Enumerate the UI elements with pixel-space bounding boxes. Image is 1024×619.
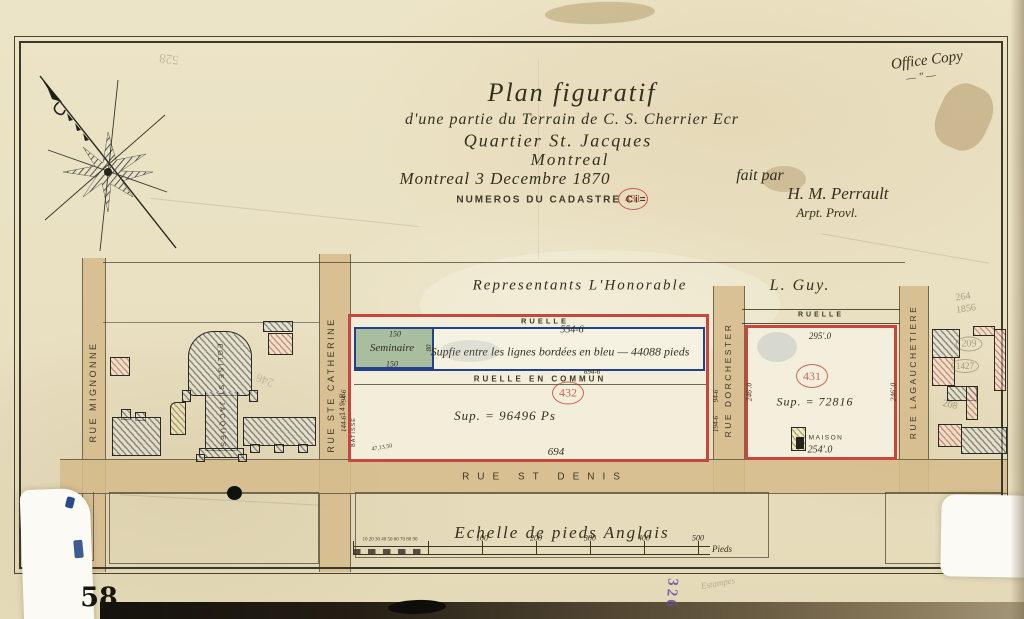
street-label-dorchester: RUE DORCHESTER xyxy=(723,323,733,438)
ink-blot xyxy=(227,486,242,500)
plan-dateline: Montreal 3 Decembre 1870 xyxy=(399,169,610,189)
representants-text: Representants L'Honorable xyxy=(473,278,688,295)
pencil-number-circled: 1427 xyxy=(951,359,979,373)
street-label-ste-catherine: RUE STE CATHERINE xyxy=(326,317,336,452)
surveyor-title: Arpt. Provl. xyxy=(796,205,857,221)
building xyxy=(932,357,955,386)
maison-label: MAISON xyxy=(809,435,844,442)
scale-bar-subdivisions xyxy=(353,549,428,554)
archive-number: 58 xyxy=(80,583,118,614)
scale-sub-numbers: 10 20 30 40 50 60 70 80 90 xyxy=(363,538,418,543)
plan-title: Plan figuratif xyxy=(488,78,657,108)
building xyxy=(973,326,995,336)
scale-tick xyxy=(353,541,354,554)
lot-431-right-measure: 246'.0 xyxy=(889,383,898,401)
lot-432-bottom-measure: 694 xyxy=(548,446,565,458)
purple-stamp-number: 326 xyxy=(661,578,680,611)
maison-building-dark xyxy=(796,437,804,449)
owner-name: L. Guy. xyxy=(770,277,831,295)
compass-rose-icon xyxy=(15,55,265,305)
blue-area-top-measure: 554-6 xyxy=(560,325,583,336)
lot-431-superficie: Sup. = 72816 xyxy=(776,395,853,410)
pencil-number-circled: 209 xyxy=(956,337,983,352)
seminaire-top-measure: 150 xyxy=(389,330,401,339)
street-label-mignonne: RUE MIGNONNE xyxy=(88,341,98,442)
seminaire-label: Seminaire xyxy=(370,342,414,354)
building xyxy=(110,357,130,376)
scale-tick-label-400: 400 xyxy=(638,534,650,543)
scale-tick-label-300: 300 xyxy=(584,534,596,543)
building xyxy=(938,424,962,447)
church-step-foot xyxy=(196,454,205,462)
scale-tick xyxy=(536,541,537,554)
scale-tick xyxy=(590,541,591,554)
building xyxy=(112,417,161,456)
scale-tick xyxy=(428,541,429,554)
ruelle-commun-line xyxy=(354,384,706,385)
lot-432-superficie: Sup. = 96496 Ps xyxy=(454,408,556,424)
lot-432-right-lower-measure: 194-6 xyxy=(712,416,720,432)
lot-431-number-stamp: 431 xyxy=(796,364,828,388)
pencil-note-top-left: 528 xyxy=(158,50,179,68)
ruelle-431-label: RUELLE xyxy=(798,312,844,319)
lot-432-right-upper-measure: 94-6 xyxy=(712,390,720,403)
scale-tick xyxy=(644,541,645,554)
building xyxy=(961,427,1007,454)
building xyxy=(268,333,293,355)
surveyor-name: H. M. Perrault xyxy=(787,184,888,204)
ink-smudge-blue xyxy=(73,540,84,559)
plan-quartier: Quartier St. Jacques xyxy=(464,131,652,152)
lot-431-top-measure: 295'.0 xyxy=(809,331,831,341)
building-foot xyxy=(298,444,308,453)
street-label-lagauchetiere: RUE LAGAUCHETIERE xyxy=(908,305,918,440)
ink-smudge xyxy=(440,340,500,362)
plan-city: Montreal xyxy=(531,150,610,170)
pencil-number: 264 xyxy=(955,291,971,304)
scale-tick-label-500: 500 xyxy=(692,534,704,543)
lot-432-batisse-label: BATISSE xyxy=(351,417,357,447)
cadastre-number: 431 xyxy=(625,193,642,205)
ruelle-commun-label: RUELLE EN COMMUN xyxy=(474,375,606,384)
church-step-foot xyxy=(238,454,247,462)
lot-432-left-lower-measure: 144-6 xyxy=(340,416,348,432)
church-transept xyxy=(182,390,191,402)
scale-bar xyxy=(353,546,710,555)
photo-right-edge-shadow xyxy=(1010,0,1024,619)
scanned-plan-page: Plan figuratif d'une partie du Terrain d… xyxy=(0,0,1024,619)
church-transept xyxy=(249,390,258,402)
lot-431-left-measure: 246'.0 xyxy=(745,383,754,401)
street-label-st-denis: RUE ST DENIS xyxy=(462,472,628,483)
paper-stain xyxy=(545,0,656,26)
fait-par: fait par xyxy=(736,167,784,185)
lot-432-number: 432 xyxy=(559,386,577,401)
scale-tick-label-100: 100 xyxy=(476,534,488,543)
building xyxy=(263,321,293,332)
plan-subtitle: d'une partie du Terrain de C. S. Cherrie… xyxy=(405,111,739,129)
building xyxy=(170,402,186,435)
building xyxy=(243,417,316,446)
lot-432-number-stamp: 432 xyxy=(552,382,584,405)
lot-432-left-upper-measure: 94-6 xyxy=(340,390,348,403)
building xyxy=(966,386,978,420)
building xyxy=(994,329,1006,391)
ink-smudge xyxy=(757,332,797,362)
building-foot xyxy=(250,444,260,453)
lot-431-number: 431 xyxy=(803,369,821,384)
scale-tick xyxy=(482,541,483,554)
scale-tick-label-200: 200 xyxy=(530,534,542,543)
cadastre-number-stamp: 431 xyxy=(618,188,648,210)
photo-bottom-shadow xyxy=(100,602,1024,619)
lot-431-bottom-measure: 254'.0 xyxy=(808,445,833,456)
building-foot xyxy=(274,444,284,453)
scale-tick xyxy=(698,541,699,554)
scale-unit-label: Pieds xyxy=(712,544,732,554)
pencil-estampes-note: Estampes xyxy=(700,575,736,591)
seminaire-bottom-measure: 150 xyxy=(386,360,398,369)
